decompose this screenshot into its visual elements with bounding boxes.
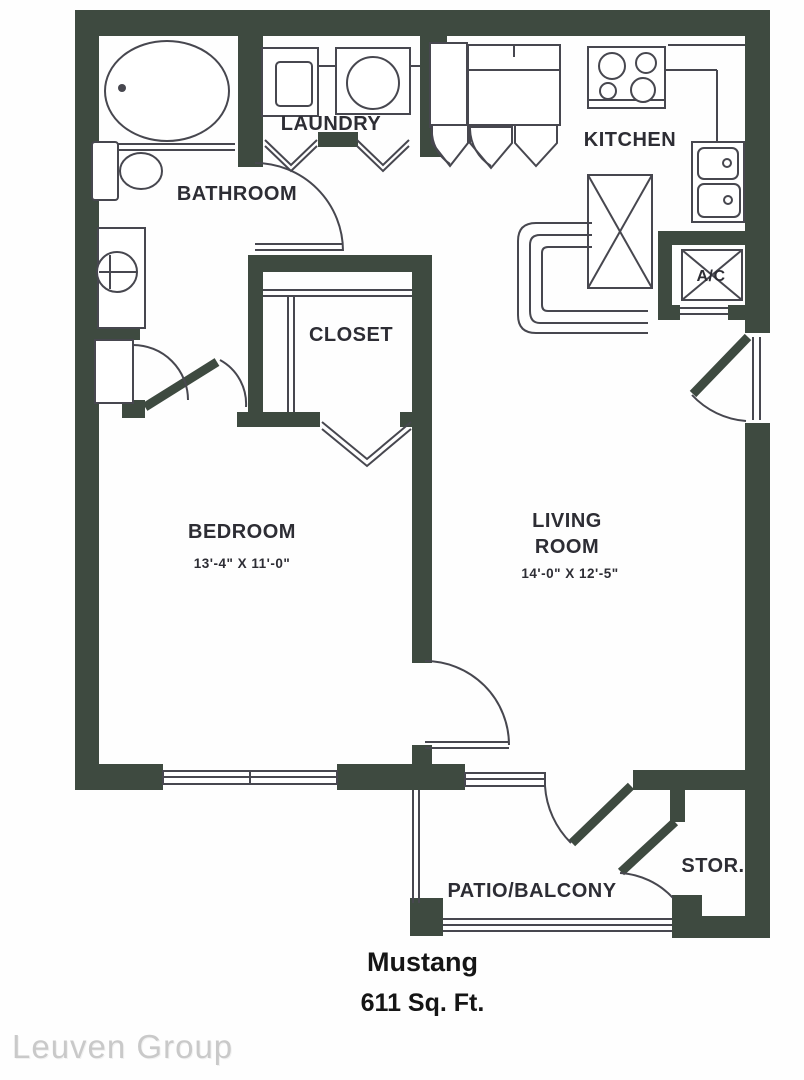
- kitchen-cabinet-icon: [430, 43, 467, 127]
- toilet-tank-icon: [92, 142, 118, 200]
- ac-label: A/C: [696, 268, 725, 285]
- bathtub-faucet-icon: [118, 84, 126, 92]
- wall-living-bottom: [433, 764, 465, 790]
- cabinet-door-icon: [432, 125, 468, 166]
- living-room-dimensions: 14'-0" X 12'-5": [521, 566, 618, 581]
- washer-door-icon: [276, 62, 312, 106]
- entry-door-leaf: [693, 337, 748, 394]
- plan-area: 611 Sq. Ft.: [75, 989, 770, 1018]
- entry-door-arc: [692, 395, 746, 421]
- floorplan-page: BATHROOM LAUNDRY KITCHEN CLOSET BEDROOM …: [0, 0, 804, 1080]
- patio-post-left: [410, 898, 443, 936]
- bathroom-door-arc: [255, 163, 343, 251]
- sink-drain-icon: [724, 196, 732, 204]
- wall-closet-left: [248, 255, 263, 413]
- patio-label: PATIO/BALCONY: [447, 880, 616, 902]
- cabinet-door-icon: [515, 125, 557, 166]
- bedroom-dimensions: 13'-4" X 11'-0": [194, 556, 291, 571]
- sink-basin-icon: [698, 184, 740, 217]
- wall-ac-stub-left: [658, 305, 680, 320]
- dryer-door-icon: [347, 57, 399, 109]
- watermark: Leuven Group: [12, 1028, 233, 1066]
- wall-right-upper: [745, 10, 770, 333]
- stove-burner-icon: [636, 53, 656, 73]
- wall-closet-stub-left: [237, 412, 320, 427]
- floorplan-drawing: BATHROOM LAUNDRY KITCHEN CLOSET BEDROOM …: [0, 0, 804, 945]
- sink-basin-icon: [698, 148, 738, 179]
- wall-storage-top: [633, 770, 770, 790]
- stove-burner-icon: [600, 83, 616, 99]
- wall-closet-top: [248, 255, 432, 272]
- linen-closet: [95, 340, 133, 403]
- kitchen-label: KITCHEN: [584, 129, 676, 151]
- patio-door-arc: [545, 786, 571, 843]
- toilet-bowl-icon: [120, 153, 162, 189]
- closet-bifold-door: [322, 429, 411, 466]
- wall-top: [75, 10, 770, 36]
- bedroom-door-leaf: [145, 362, 217, 407]
- laundry-bifold-left: [265, 146, 317, 171]
- stove-burner-icon: [631, 78, 655, 102]
- bedroom-label: BEDROOM: [188, 521, 296, 543]
- closet-label: CLOSET: [309, 324, 393, 346]
- laundry-bifold-right: [357, 146, 409, 171]
- plan-name: Mustang: [75, 948, 770, 978]
- storage-door-arc: [620, 873, 673, 898]
- wall-bedroom-living-divider: [412, 255, 432, 663]
- wall-bath-laundry-divider: [238, 35, 263, 167]
- wall-ac-top: [658, 231, 755, 245]
- storage-door-leaf: [621, 822, 675, 872]
- stove-burner-icon: [599, 53, 625, 79]
- wall-closet-stub-right: [400, 412, 432, 427]
- living-room-label: ROOM: [535, 536, 599, 558]
- patio-door-leaf: [572, 786, 631, 843]
- wall-right-lower: [745, 423, 770, 938]
- cabinet-door-icon: [470, 127, 512, 168]
- patio-post-right: [672, 895, 702, 938]
- bathroom-label: BATHROOM: [177, 183, 297, 205]
- linen-door-arc: [133, 345, 188, 400]
- bedroom-door-arc: [220, 360, 246, 407]
- wall-ac-stub-right: [728, 305, 755, 320]
- living-room-label: LIVING: [532, 510, 602, 532]
- wall-storage-corner: [670, 788, 685, 822]
- sink-drain-icon: [723, 159, 731, 167]
- wall-bedroom-bottom-left: [75, 764, 163, 790]
- bedroom-living-door-arc: [425, 661, 509, 745]
- plan-footer: Mustang 611 Sq. Ft.: [75, 948, 770, 1018]
- laundry-label: LAUNDRY: [281, 113, 382, 135]
- storage-label: STOR.: [681, 855, 744, 877]
